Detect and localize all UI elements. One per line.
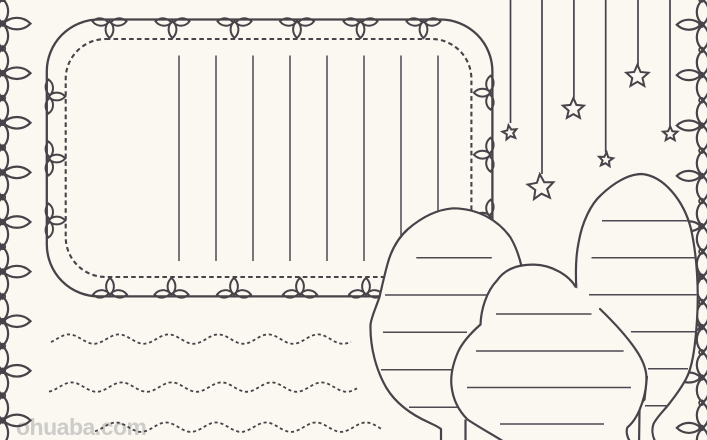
- svg-text:ohuaba.com: ohuaba.com: [16, 414, 147, 440]
